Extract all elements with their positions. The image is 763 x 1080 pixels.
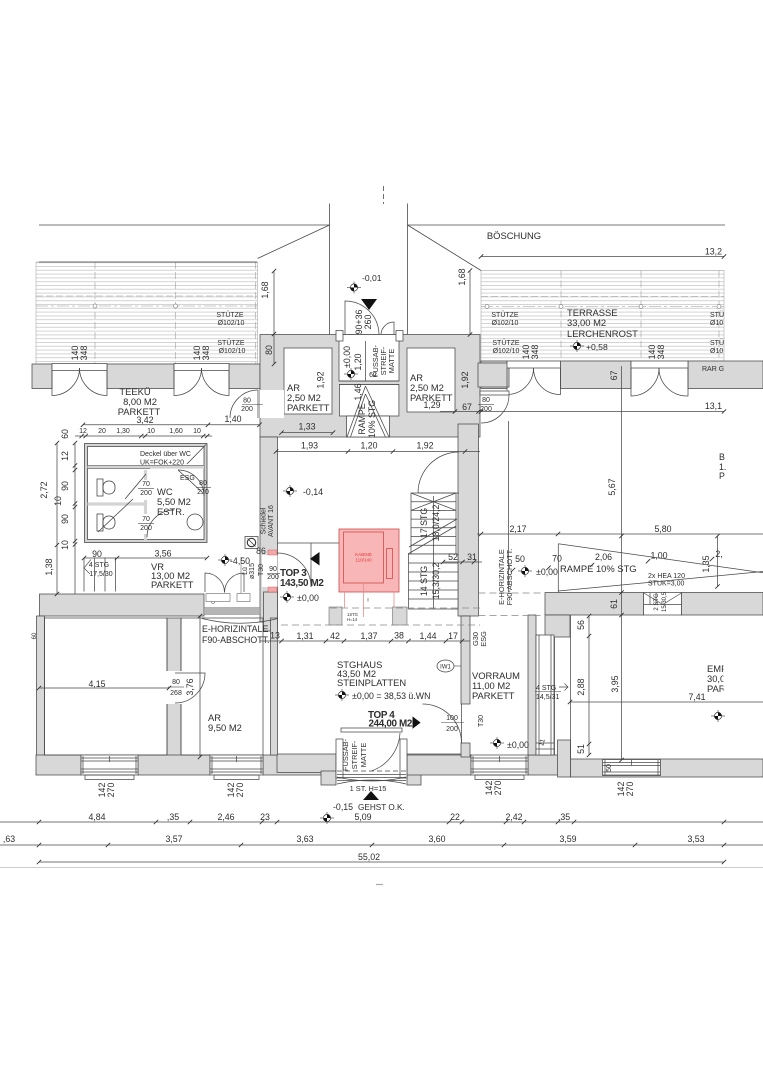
svg-text:270: 270 xyxy=(493,781,503,796)
svg-text:RAMPE: RAMPE xyxy=(357,403,367,434)
svg-text:STÜTZE: STÜTZE xyxy=(492,339,520,347)
svg-text:FUSSAB-: FUSSAB- xyxy=(341,738,350,771)
svg-text:52: 52 xyxy=(448,552,458,562)
svg-text:15/30,5: 15/30,5 xyxy=(662,591,668,612)
svg-text:50: 50 xyxy=(515,554,525,564)
svg-text:110/140: 110/140 xyxy=(355,558,372,563)
svg-text:T30: T30 xyxy=(478,715,485,727)
svg-text:270: 270 xyxy=(106,783,116,798)
svg-text:Ø102/10: Ø102/10 xyxy=(492,320,519,327)
svg-text:1,30: 1,30 xyxy=(116,428,130,435)
svg-text:5,80: 5,80 xyxy=(654,524,671,534)
svg-text:18,0/24,2: 18,0/24,2 xyxy=(431,505,441,542)
svg-text:E-HORIZINTALE: E-HORIZINTALE xyxy=(202,624,268,634)
svg-text:1,37: 1,37 xyxy=(360,631,377,641)
svg-text:10: 10 xyxy=(193,428,201,435)
svg-text:UK=FOK+220: UK=FOK+220 xyxy=(140,460,184,467)
svg-text:220: 220 xyxy=(197,489,209,496)
svg-text:2,17: 2,17 xyxy=(509,524,526,534)
svg-text:5,09: 5,09 xyxy=(354,812,371,822)
svg-text:61: 61 xyxy=(609,599,619,609)
svg-text:268: 268 xyxy=(170,690,182,697)
svg-text:17 STG: 17 STG xyxy=(419,508,429,538)
svg-text:10% STG: 10% STG xyxy=(367,400,377,438)
svg-text:STÜTZE: STÜTZE xyxy=(216,311,244,319)
svg-text:70: 70 xyxy=(142,516,150,523)
svg-text:60: 60 xyxy=(60,429,70,439)
svg-text:22: 22 xyxy=(450,812,460,822)
svg-text:-0,15: -0,15 xyxy=(333,802,353,812)
svg-text:STUK=3,00: STUK=3,00 xyxy=(648,581,684,588)
svg-text:90: 90 xyxy=(92,549,102,559)
svg-text:4 STG: 4 STG xyxy=(536,685,556,692)
svg-text:17,5/30: 17,5/30 xyxy=(89,571,112,578)
svg-text:Ø102/10: Ø102/10 xyxy=(218,320,245,327)
svg-text:PARKETT: PARKETT xyxy=(287,402,330,413)
svg-text:4 STG: 4 STG xyxy=(89,562,109,569)
svg-text:-0,14: -0,14 xyxy=(303,487,323,497)
svg-text:1,92: 1,92 xyxy=(316,371,326,388)
svg-text:B: B xyxy=(719,452,725,462)
svg-text:67: 67 xyxy=(609,371,619,381)
svg-text:15,3/30,2: 15,3/30,2 xyxy=(431,563,441,600)
svg-text:1,46: 1,46 xyxy=(353,383,363,400)
svg-text:270: 270 xyxy=(625,782,635,797)
svg-text:1,29: 1,29 xyxy=(423,400,440,410)
svg-text:80: 80 xyxy=(172,679,180,686)
svg-text:56: 56 xyxy=(576,620,586,630)
svg-text:AVANT 16: AVANT 16 xyxy=(268,505,275,537)
svg-text:F90-ABSCHOTT.: F90-ABSCHOTT. xyxy=(505,549,514,606)
svg-text:IW1: IW1 xyxy=(440,665,451,671)
svg-text:GEHST O.K.: GEHST O.K. xyxy=(358,803,405,812)
svg-text:23: 23 xyxy=(260,812,270,822)
svg-text:LERCHENROST: LERCHENROST xyxy=(567,328,638,339)
svg-text:H=14: H=14 xyxy=(347,617,358,622)
svg-text:60: 60 xyxy=(32,632,38,639)
svg-text:143,50 M2: 143,50 M2 xyxy=(280,578,324,589)
svg-text:,63: ,63 xyxy=(3,834,15,844)
svg-text:RAMPE 10% STG: RAMPE 10% STG xyxy=(560,563,637,574)
svg-text:ESTR.: ESTR. xyxy=(157,506,185,517)
svg-text:51: 51 xyxy=(576,744,586,754)
svg-text:200: 200 xyxy=(480,406,492,413)
svg-text:,35: ,35 xyxy=(167,812,179,822)
svg-text:4,15: 4,15 xyxy=(88,679,105,689)
svg-text:90: 90 xyxy=(60,481,70,491)
svg-text:200: 200 xyxy=(241,406,253,413)
svg-text:MATTE: MATTE xyxy=(387,349,396,374)
svg-text:STÜTZE: STÜTZE xyxy=(217,339,245,347)
svg-text:4,84: 4,84 xyxy=(88,812,105,822)
svg-text:ESG: ESG xyxy=(180,475,195,482)
svg-text:200: 200 xyxy=(446,726,458,733)
svg-text:F90-ABSCHOTT.: F90-ABSCHOTT. xyxy=(202,635,269,645)
svg-text:±0,00: ±0,00 xyxy=(297,593,319,603)
svg-text:1,44: 1,44 xyxy=(419,631,436,641)
svg-text:Ø102/10: Ø102/10 xyxy=(493,348,520,355)
svg-text:3,63: 3,63 xyxy=(296,834,313,844)
svg-text:-4,50: -4,50 xyxy=(230,556,250,566)
svg-text:200: 200 xyxy=(267,574,279,581)
svg-text:13: 13 xyxy=(270,631,280,641)
svg-text:9,50 M2: 9,50 M2 xyxy=(208,722,242,733)
svg-text:1 ST. H=15: 1 ST. H=15 xyxy=(350,784,387,793)
svg-text:348: 348 xyxy=(201,346,211,361)
svg-text:+0,58: +0,58 xyxy=(586,342,608,352)
svg-text:STEINPLATTEN: STEINPLATTEN xyxy=(337,677,406,688)
svg-text:42: 42 xyxy=(330,631,340,641)
svg-text:1,93: 1,93 xyxy=(301,441,318,451)
svg-text:1,33: 1,33 xyxy=(298,422,315,432)
svg-text:2,: 2, xyxy=(715,549,722,559)
svg-text:2,46: 2,46 xyxy=(217,812,234,822)
svg-text:3,95: 3,95 xyxy=(610,675,620,692)
svg-text:1,38: 1,38 xyxy=(44,558,54,575)
svg-text:±0,00 = 38,53 ü.WN: ±0,00 = 38,53 ü.WN xyxy=(352,691,430,701)
svg-text:2x HEA 120: 2x HEA 120 xyxy=(648,573,685,580)
svg-text:T30: T30 xyxy=(258,564,265,576)
svg-text:90: 90 xyxy=(60,514,70,524)
svg-text:55,02: 55,02 xyxy=(358,852,380,862)
svg-text:3,57: 3,57 xyxy=(165,834,182,844)
svg-text:1,68: 1,68 xyxy=(457,268,467,285)
svg-text:2,88: 2,88 xyxy=(576,678,586,695)
svg-text:1,92: 1,92 xyxy=(460,371,470,388)
svg-text:1,20: 1,20 xyxy=(360,441,377,451)
svg-text:2 STG: 2 STG xyxy=(654,593,660,611)
svg-text:80: 80 xyxy=(264,345,274,355)
svg-text:17: 17 xyxy=(448,631,458,641)
svg-text:3,76: 3,76 xyxy=(185,678,195,695)
svg-text:14 STG: 14 STG xyxy=(419,566,429,596)
svg-text:90: 90 xyxy=(269,566,277,573)
svg-text:1,00: 1,00 xyxy=(650,551,667,561)
svg-text:80: 80 xyxy=(243,398,251,405)
svg-text:PARKETT: PARKETT xyxy=(472,690,515,701)
svg-text:33,00 M2: 33,00 M2 xyxy=(567,317,606,328)
svg-text:1,68: 1,68 xyxy=(260,281,270,298)
svg-text:PARKETT: PARKETT xyxy=(151,579,194,590)
svg-text:ESG: ESG xyxy=(479,631,488,647)
svg-text:MATTE: MATTE xyxy=(359,743,368,768)
svg-text:1,92: 1,92 xyxy=(416,441,433,451)
svg-text:-0,01: -0,01 xyxy=(362,273,382,283)
svg-text:12: 12 xyxy=(79,428,87,435)
svg-text:100: 100 xyxy=(446,715,458,722)
svg-text:38: 38 xyxy=(394,631,404,641)
svg-text:3,59: 3,59 xyxy=(559,834,576,844)
svg-text:BÖSCHUNG: BÖSCHUNG xyxy=(487,230,541,241)
svg-text:2,06: 2,06 xyxy=(595,552,612,562)
svg-text:3,56: 3,56 xyxy=(154,549,171,559)
svg-text:Lü: Lü xyxy=(242,567,249,575)
svg-text:67: 67 xyxy=(462,402,472,412)
svg-text:±0,00: ±0,00 xyxy=(507,740,529,750)
svg-text:10: 10 xyxy=(147,428,155,435)
svg-text:Ø102/10: Ø102/10 xyxy=(219,348,246,355)
svg-text:13,1: 13,1 xyxy=(705,401,722,411)
svg-text:348: 348 xyxy=(79,346,89,361)
svg-text:5,67: 5,67 xyxy=(607,478,617,495)
svg-text:1,40: 1,40 xyxy=(224,414,241,424)
svg-text:1,35: 1,35 xyxy=(701,555,711,572)
svg-text:260: 260 xyxy=(363,315,373,330)
svg-text:3,42: 3,42 xyxy=(136,415,153,425)
svg-text:14,5/31: 14,5/31 xyxy=(536,694,559,701)
svg-text:Deckel über WC: Deckel über WC xyxy=(140,451,191,458)
svg-text:50: 50 xyxy=(606,764,613,772)
svg-text:3,60: 3,60 xyxy=(428,834,445,844)
svg-text:STREIF-: STREIF- xyxy=(350,740,359,769)
svg-text:Schiedel: Schiedel xyxy=(261,507,268,534)
svg-text:80: 80 xyxy=(482,397,490,404)
svg-text:13,2: 13,2 xyxy=(705,247,722,257)
svg-text:10: 10 xyxy=(53,496,63,506)
svg-text:STÜTZE: STÜTZE xyxy=(491,311,519,319)
svg-text:200: 200 xyxy=(140,490,152,497)
svg-text:70: 70 xyxy=(142,481,150,488)
svg-text:200: 200 xyxy=(140,525,152,532)
svg-text:12: 12 xyxy=(60,451,70,461)
svg-text:7,41: 7,41 xyxy=(688,692,705,702)
svg-text:348: 348 xyxy=(530,345,540,360)
svg-text:1,20: 1,20 xyxy=(353,353,363,370)
svg-text:1,31: 1,31 xyxy=(296,631,313,641)
svg-text:1,60: 1,60 xyxy=(169,428,183,435)
svg-text:70: 70 xyxy=(552,554,562,564)
svg-text:20: 20 xyxy=(98,428,106,435)
svg-text:±0,00: ±0,00 xyxy=(536,567,558,577)
svg-text:244,00 M2: 244,00 M2 xyxy=(369,719,413,730)
svg-text:P: P xyxy=(719,471,725,481)
svg-text:KABINE: KABINE xyxy=(355,552,372,557)
svg-text:270: 270 xyxy=(235,783,245,798)
svg-text:±0,00: ±0,00 xyxy=(342,346,352,368)
svg-text:10: 10 xyxy=(60,540,70,550)
svg-text:80: 80 xyxy=(199,480,207,487)
svg-text:348: 348 xyxy=(656,345,666,360)
svg-text:ø315: ø315 xyxy=(249,563,256,579)
svg-text:3,53: 3,53 xyxy=(687,834,704,844)
svg-text:2,72: 2,72 xyxy=(39,481,49,498)
